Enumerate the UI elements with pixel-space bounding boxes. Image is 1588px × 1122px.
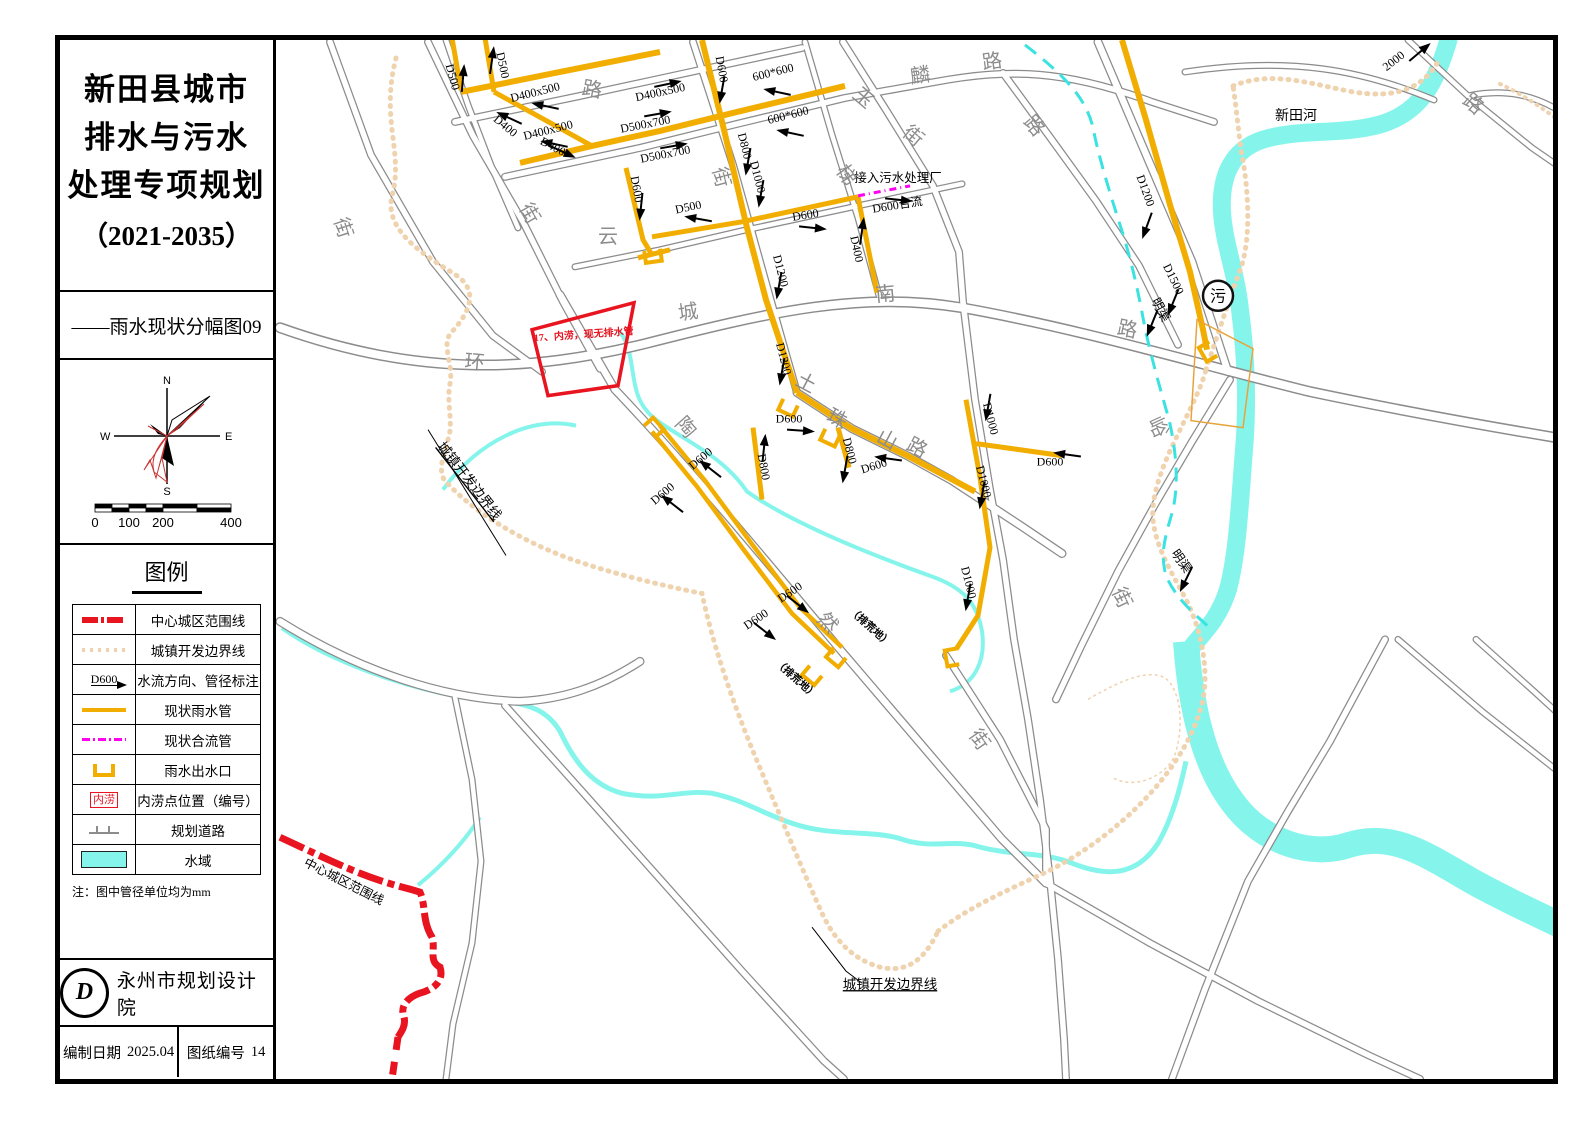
plan-sheet: 新田县城市 排水与污水 处理专项规划 （2021-2035） ——雨水现状分幅图…	[0, 0, 1588, 1122]
scale-label: 0	[91, 515, 98, 530]
legend-label: 现状合流管	[136, 730, 260, 750]
org-name: 永州市规划设计院	[117, 966, 273, 1020]
flow-arrow-icon	[799, 222, 828, 234]
map-label: 接入污水处理厂	[854, 170, 941, 185]
compass-w: W	[100, 431, 111, 443]
map-label: 新田河	[1275, 108, 1317, 124]
legend-row: 水域	[73, 845, 260, 874]
legend-label: 中心城区范围线	[136, 610, 260, 630]
map-label: D600	[628, 175, 646, 204]
map-canvas[interactable]: D500D500D400x500D400x500D400x500D500x700…	[276, 40, 1553, 1079]
legend-table: 中心城区范围线城镇开发边界线D600水流方向、管径标注现状雨水管现状合流管雨水出…	[72, 604, 261, 875]
map-label: D1500	[1160, 261, 1187, 296]
map-label: 600*600	[751, 60, 795, 84]
map-label: 2000	[1380, 48, 1408, 74]
legend-symbol-water	[73, 845, 136, 874]
compass-rose-icon: N S E W	[92, 374, 242, 496]
map-label: D600	[791, 206, 820, 224]
org-block: D 永州市规划设计院	[60, 958, 273, 1025]
map-label: 峪	[1143, 413, 1172, 441]
sheet-label: 图纸编号	[187, 1042, 245, 1063]
map-label: 污	[1210, 288, 1226, 306]
legend-row: 现状合流管	[73, 725, 260, 755]
title-line: 新田县城市	[60, 66, 273, 114]
scale-bar: 0100200400	[87, 500, 247, 530]
map-label: 路	[1115, 316, 1139, 343]
sheet-frame: 新田县城市 排水与污水 处理专项规划 （2021-2035） ——雨水现状分幅图…	[55, 35, 1558, 1084]
legend-label: 规划道路	[136, 820, 260, 840]
map-label: 陶	[671, 412, 701, 442]
map-label: D600	[859, 455, 889, 476]
legend-row: 城镇开发边界线	[73, 635, 260, 665]
date-value: 2025.04	[127, 1044, 174, 1061]
flow-arrow-icon	[787, 425, 816, 436]
map-label: 路	[981, 49, 1004, 75]
legend-row: 规划道路	[73, 815, 260, 845]
legend-symbol-planned-road	[73, 815, 136, 844]
compass-n: N	[163, 375, 171, 387]
map-label: 城	[677, 300, 700, 326]
annotations-layer	[428, 281, 1253, 983]
date-label: 编制日期	[63, 1042, 121, 1063]
map-label: （排荒地）	[846, 604, 894, 649]
map-label: D1000	[747, 159, 768, 194]
legend-row: D600水流方向、管径标注	[73, 665, 260, 695]
sheet-value: 14	[251, 1044, 266, 1061]
legend-heading: 图例	[132, 555, 202, 594]
title-years: （2021-2035）	[60, 210, 273, 262]
legend-label: 内涝点位置（编号）	[136, 790, 260, 810]
legend-symbol-flow: D600	[73, 665, 136, 694]
flow-arrow-icon	[1138, 211, 1156, 240]
legend-row: 内涝内涝点位置（编号）	[73, 785, 260, 815]
meta-row: 编制日期 2025.04 图纸编号 14	[60, 1025, 273, 1077]
map-label: D600	[1037, 455, 1064, 469]
legend-symbol-red-dash	[73, 605, 136, 634]
legend-note: 注：图中管径单位均为mm	[72, 883, 261, 900]
legend-label: 水流方向、管径标注	[136, 670, 260, 690]
scale-label: 100	[118, 515, 140, 530]
compass-scale-block: N S E W 0100200400	[60, 358, 273, 543]
legend-symbol-rain-pipe	[73, 695, 136, 724]
scale-label: 200	[152, 515, 174, 530]
map-label: D600	[776, 412, 803, 426]
legend-label: 水域	[136, 850, 260, 870]
map-label: 麟	[909, 63, 932, 89]
title-line: 排水与污水	[60, 114, 273, 162]
compass-s: S	[163, 486, 170, 496]
map-label: 街	[898, 121, 928, 151]
map-label: 梯	[831, 160, 861, 190]
map-label: 然	[812, 608, 842, 638]
map-label: D500	[493, 51, 512, 80]
map-label: 路	[580, 76, 604, 102]
sidebar: 新田县城市 排水与污水 处理专项规划 （2021-2035） ——雨水现状分幅图…	[60, 40, 276, 1079]
legend-label: 雨水出水口	[136, 760, 260, 780]
scale-label: 400	[220, 515, 242, 530]
map-label: 城镇开发边界线	[843, 977, 937, 992]
legend-label: 现状雨水管	[136, 700, 260, 720]
map-label: （排荒地）	[772, 656, 820, 701]
map-label: D600	[741, 606, 771, 632]
map-label: 环	[464, 351, 486, 375]
legend-row: 雨水出水口	[73, 755, 260, 785]
map-label: D1200	[770, 253, 791, 288]
map-label: 云	[598, 226, 618, 248]
map-label: 南	[874, 282, 896, 307]
map-label: D600	[713, 55, 731, 84]
meta-sheet: 图纸编号 14	[177, 1027, 273, 1077]
map-label: D500	[674, 197, 703, 216]
meta-date: 编制日期 2025.04	[60, 1027, 177, 1077]
legend-symbol-outfall	[73, 755, 136, 784]
map-label: D400	[491, 112, 520, 140]
title-line: 处理专项规划	[60, 162, 273, 210]
legend-label: 城镇开发边界线	[136, 640, 260, 660]
title-block: 新田县城市 排水与污水 处理专项规划 （2021-2035）	[60, 40, 273, 290]
legend-symbol-tan-dot	[73, 635, 136, 664]
map-label: D800	[735, 131, 755, 160]
legend-row: 中心城区范围线	[73, 605, 260, 635]
map-svg: D500D500D400x500D400x500D400x500D500x700…	[276, 40, 1553, 1079]
map-label: 街	[329, 215, 357, 241]
legend-row: 现状雨水管	[73, 695, 260, 725]
org-logo-icon: D	[60, 968, 109, 1018]
legend: 图例 中心城区范围线城镇开发边界线D600水流方向、管径标注现状雨水管现状合流管…	[60, 543, 273, 958]
flow-arrow-icon	[775, 126, 804, 141]
legend-symbol-flood-point: 内涝	[73, 785, 136, 814]
map-label: 600*600	[766, 103, 810, 127]
compass-e: E	[225, 431, 232, 443]
map-label: D800	[840, 436, 860, 465]
map-label: D1200	[773, 341, 794, 376]
legend-symbol-combined-pipe	[73, 725, 136, 754]
sheet-subtitle: ——雨水现状分幅图09	[60, 290, 273, 358]
